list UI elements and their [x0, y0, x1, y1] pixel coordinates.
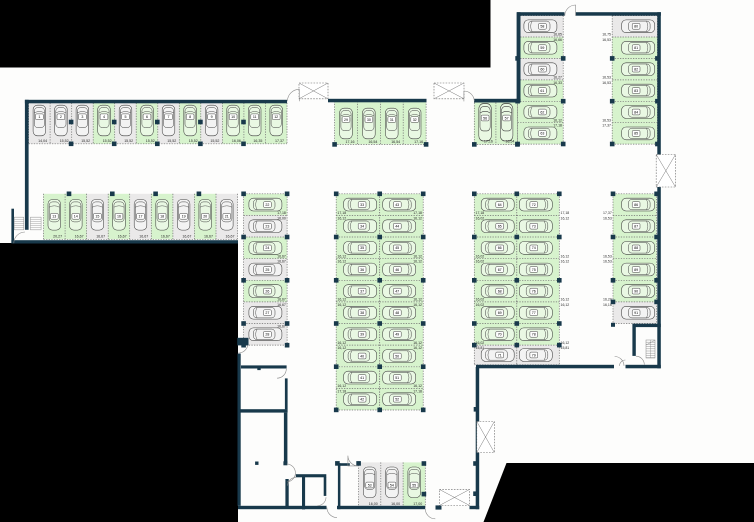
- svg-text:16,54: 16,54: [391, 140, 400, 144]
- svg-text:16,67: 16,67: [204, 235, 213, 239]
- svg-text:16,12: 16,12: [561, 216, 570, 220]
- svg-text:16,67: 16,67: [139, 235, 148, 239]
- svg-text:32: 32: [413, 118, 417, 122]
- svg-text:21: 21: [225, 215, 229, 219]
- svg-text:16,12: 16,12: [561, 254, 570, 258]
- svg-text:17: 17: [139, 215, 143, 219]
- svg-text:17,37: 17,37: [275, 139, 284, 143]
- svg-text:14,04: 14,04: [38, 139, 47, 143]
- svg-text:19: 19: [182, 215, 186, 219]
- svg-text:17,18: 17,18: [553, 124, 562, 128]
- svg-text:23: 23: [265, 225, 269, 229]
- svg-text:16,12: 16,12: [561, 303, 570, 307]
- svg-text:42: 42: [360, 398, 364, 402]
- svg-text:16,67: 16,67: [75, 235, 84, 239]
- svg-text:26: 26: [265, 289, 269, 293]
- svg-text:16,53: 16,53: [603, 254, 612, 258]
- svg-text:16,27: 16,27: [553, 76, 562, 80]
- svg-text:40: 40: [360, 354, 364, 358]
- svg-text:16,12: 16,12: [337, 260, 346, 264]
- svg-text:43: 43: [395, 203, 399, 207]
- svg-text:16,67: 16,67: [277, 325, 286, 329]
- svg-text:15,52: 15,52: [210, 139, 219, 143]
- svg-text:16: 16: [117, 215, 121, 219]
- svg-text:16,12: 16,12: [337, 298, 346, 302]
- svg-text:16,67: 16,67: [277, 260, 286, 264]
- svg-text:25: 25: [265, 268, 269, 272]
- svg-text:16,12: 16,12: [337, 346, 346, 350]
- svg-text:17,37: 17,37: [602, 124, 611, 128]
- svg-text:16,67: 16,67: [277, 298, 286, 302]
- svg-text:16,65: 16,65: [553, 33, 562, 37]
- svg-text:39: 39: [360, 333, 364, 337]
- svg-text:47: 47: [395, 289, 399, 293]
- svg-text:16,20: 16,20: [603, 298, 612, 302]
- svg-text:44: 44: [395, 225, 399, 229]
- svg-text:66: 66: [498, 246, 502, 250]
- svg-text:48: 48: [395, 311, 399, 315]
- svg-text:16,12: 16,12: [413, 303, 422, 307]
- svg-text:16,53: 16,53: [602, 118, 611, 122]
- svg-text:16,02: 16,02: [476, 341, 485, 345]
- svg-text:16,00: 16,00: [277, 216, 286, 220]
- svg-text:41: 41: [360, 376, 364, 380]
- svg-text:87: 87: [634, 225, 638, 229]
- svg-text:37: 37: [360, 289, 364, 293]
- svg-text:16,67: 16,67: [182, 235, 191, 239]
- svg-text:17,16: 17,16: [414, 140, 423, 144]
- svg-text:18: 18: [160, 215, 164, 219]
- svg-text:61: 61: [540, 89, 544, 93]
- svg-text:16,67: 16,67: [226, 235, 235, 239]
- svg-text:27: 27: [265, 311, 269, 315]
- svg-text:52: 52: [395, 398, 399, 402]
- svg-text:17,18: 17,18: [413, 389, 422, 393]
- svg-text:16,02: 16,02: [476, 298, 485, 302]
- svg-text:16,02: 16,02: [476, 254, 485, 258]
- svg-text:16,12: 16,12: [337, 341, 346, 345]
- svg-text:89: 89: [634, 268, 638, 272]
- svg-text:17,18: 17,18: [277, 211, 286, 215]
- svg-text:5: 5: [125, 115, 127, 119]
- svg-text:16,12: 16,12: [413, 254, 422, 258]
- svg-text:46: 46: [395, 268, 399, 272]
- svg-text:85: 85: [634, 132, 638, 136]
- svg-text:16,12: 16,12: [337, 384, 346, 388]
- svg-text:15,81: 15,81: [476, 346, 485, 350]
- svg-text:17,00: 17,00: [413, 502, 422, 506]
- svg-text:30: 30: [367, 118, 371, 122]
- svg-text:14: 14: [74, 215, 78, 219]
- svg-text:16,12: 16,12: [413, 346, 422, 350]
- svg-text:76: 76: [532, 289, 536, 293]
- svg-text:16,53: 16,53: [602, 81, 611, 85]
- svg-text:35: 35: [360, 246, 364, 250]
- svg-text:59: 59: [540, 46, 544, 50]
- svg-text:9: 9: [211, 115, 213, 119]
- svg-text:64: 64: [498, 203, 502, 207]
- svg-text:16,53: 16,53: [603, 216, 612, 220]
- svg-text:15,81: 15,81: [561, 346, 570, 350]
- svg-text:33: 33: [360, 203, 364, 207]
- svg-text:90: 90: [634, 289, 638, 293]
- svg-text:86: 86: [634, 203, 638, 207]
- svg-text:16,12: 16,12: [561, 298, 570, 302]
- svg-text:56: 56: [483, 116, 487, 120]
- svg-text:16,54: 16,54: [505, 140, 514, 144]
- svg-text:13: 13: [52, 215, 56, 219]
- svg-text:1: 1: [38, 115, 40, 119]
- svg-text:29: 29: [344, 118, 348, 122]
- svg-text:17,18: 17,18: [476, 211, 485, 215]
- svg-text:16,12: 16,12: [561, 341, 570, 345]
- svg-text:17,18: 17,18: [561, 211, 570, 215]
- svg-text:67: 67: [498, 268, 502, 272]
- svg-text:78: 78: [532, 333, 536, 337]
- svg-text:16,53: 16,53: [602, 76, 611, 80]
- svg-text:81: 81: [634, 46, 638, 50]
- svg-text:16,02: 16,02: [476, 216, 485, 220]
- svg-text:15: 15: [95, 215, 99, 219]
- svg-text:16,75: 16,75: [602, 33, 611, 37]
- svg-text:16,67: 16,67: [277, 303, 286, 307]
- svg-text:8: 8: [189, 115, 191, 119]
- svg-text:16,35: 16,35: [253, 139, 262, 143]
- svg-text:3: 3: [81, 115, 83, 119]
- svg-text:15,52: 15,52: [189, 139, 198, 143]
- svg-text:63: 63: [540, 132, 544, 136]
- svg-text:2: 2: [60, 115, 62, 119]
- svg-text:15,52: 15,52: [103, 139, 112, 143]
- svg-text:15,52: 15,52: [124, 139, 133, 143]
- svg-text:79: 79: [532, 353, 536, 357]
- svg-text:60: 60: [540, 68, 544, 72]
- svg-text:16,12: 16,12: [561, 260, 570, 264]
- svg-text:34: 34: [360, 225, 364, 229]
- svg-text:65: 65: [498, 225, 502, 229]
- svg-text:80: 80: [634, 25, 638, 29]
- svg-text:15,52: 15,52: [60, 139, 69, 143]
- svg-text:51: 51: [395, 376, 399, 380]
- svg-text:16,12: 16,12: [337, 254, 346, 258]
- svg-text:72: 72: [532, 203, 536, 207]
- svg-text:55: 55: [412, 483, 416, 487]
- svg-text:88: 88: [634, 246, 638, 250]
- svg-text:16,06: 16,06: [232, 139, 241, 143]
- svg-text:16,12: 16,12: [413, 384, 422, 388]
- svg-text:71: 71: [498, 353, 502, 357]
- svg-text:16,12: 16,12: [413, 216, 422, 220]
- svg-text:38: 38: [360, 311, 364, 315]
- svg-text:53: 53: [368, 483, 372, 487]
- svg-text:83: 83: [634, 89, 638, 93]
- svg-text:20: 20: [203, 215, 207, 219]
- svg-text:4: 4: [103, 115, 105, 119]
- svg-text:75: 75: [532, 268, 536, 272]
- svg-text:10: 10: [231, 115, 235, 119]
- svg-text:16,12: 16,12: [553, 118, 562, 122]
- svg-text:17,18: 17,18: [337, 389, 346, 393]
- svg-text:16,67: 16,67: [96, 235, 105, 239]
- svg-text:58: 58: [540, 25, 544, 29]
- svg-text:84: 84: [634, 110, 638, 114]
- svg-text:74: 74: [532, 246, 536, 250]
- svg-text:17,18: 17,18: [413, 211, 422, 215]
- svg-text:16,33: 16,33: [553, 81, 562, 85]
- svg-text:16,12: 16,12: [413, 298, 422, 302]
- svg-text:16,12: 16,12: [337, 303, 346, 307]
- svg-text:16,66: 16,66: [553, 38, 562, 42]
- svg-text:82: 82: [634, 68, 638, 72]
- svg-text:16,53: 16,53: [602, 38, 611, 42]
- svg-text:6: 6: [146, 115, 148, 119]
- svg-text:16,02: 16,02: [476, 260, 485, 264]
- svg-text:54: 54: [390, 483, 394, 487]
- svg-text:16,12: 16,12: [413, 260, 422, 264]
- svg-text:36: 36: [360, 268, 364, 272]
- svg-text:17,16: 17,16: [346, 140, 355, 144]
- svg-text:70: 70: [498, 333, 502, 337]
- svg-text:91: 91: [634, 311, 638, 315]
- svg-text:17,37: 17,37: [603, 211, 612, 215]
- svg-text:77: 77: [532, 311, 536, 315]
- svg-text:17,18: 17,18: [337, 211, 346, 215]
- svg-text:12: 12: [274, 115, 278, 119]
- svg-text:16,00: 16,00: [369, 502, 378, 506]
- svg-text:31: 31: [390, 118, 394, 122]
- svg-text:22: 22: [265, 203, 269, 207]
- svg-text:16,67: 16,67: [161, 235, 170, 239]
- svg-text:17,16: 17,16: [484, 140, 493, 144]
- svg-text:16,54: 16,54: [368, 140, 377, 144]
- svg-text:73: 73: [532, 225, 536, 229]
- svg-text:16,00: 16,00: [391, 502, 400, 506]
- svg-text:16,67: 16,67: [277, 254, 286, 258]
- svg-text:16,67: 16,67: [118, 235, 127, 239]
- svg-text:68: 68: [498, 289, 502, 293]
- svg-text:28: 28: [265, 333, 269, 337]
- svg-text:7: 7: [168, 115, 170, 119]
- svg-text:16,12: 16,12: [337, 216, 346, 220]
- svg-text:11: 11: [253, 115, 257, 119]
- svg-text:69: 69: [498, 311, 502, 315]
- svg-text:16,12: 16,12: [413, 341, 422, 345]
- svg-text:20,27: 20,27: [53, 235, 62, 239]
- svg-text:24: 24: [265, 246, 269, 250]
- svg-text:16,16: 16,16: [603, 303, 612, 307]
- svg-text:16,02: 16,02: [476, 303, 485, 307]
- svg-text:50: 50: [395, 354, 399, 358]
- svg-text:15,52: 15,52: [81, 139, 90, 143]
- svg-text:15,52: 15,52: [146, 139, 155, 143]
- svg-text:15,52: 15,52: [167, 139, 176, 143]
- svg-text:49: 49: [395, 333, 399, 337]
- svg-text:57: 57: [505, 116, 509, 120]
- svg-text:62: 62: [540, 110, 544, 114]
- svg-text:16,53: 16,53: [603, 260, 612, 264]
- svg-text:45: 45: [395, 246, 399, 250]
